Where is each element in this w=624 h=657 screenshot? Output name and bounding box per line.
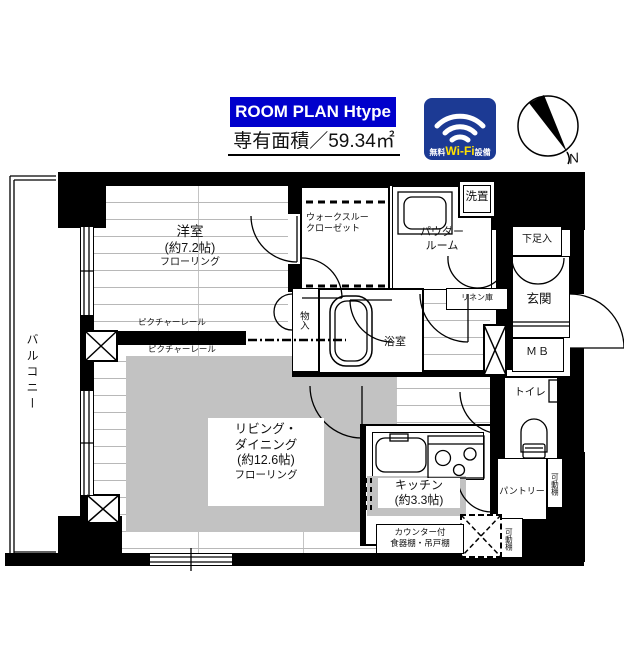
movable-shelf-2-label: 可動棚 <box>504 522 513 556</box>
western-room-size: (約7.2帖) <box>130 241 250 257</box>
kitchen-label-2: (約3.3帖) <box>378 493 460 508</box>
ld-label-4: フローリング <box>208 469 324 482</box>
storage-label: 物入 <box>297 298 309 342</box>
kitchen-label: キッチン (約3.3帖) <box>378 478 460 508</box>
wall-hall-toilet <box>490 372 504 464</box>
powder-label-1: パウダー <box>406 226 478 240</box>
laundry-label: 洗置 <box>458 190 496 204</box>
powder-label-2: ルーム <box>406 240 478 254</box>
wtc-label-1: ウォークスルー <box>306 212 388 223</box>
compass-n-label: N <box>562 148 585 169</box>
western-room-floor-type: フローリング <box>130 257 250 270</box>
refrigerator-space <box>460 514 502 558</box>
wifi-label-pre: 無料 <box>429 148 445 157</box>
picture-rail-label-1: ピクチャーレール <box>138 317 202 328</box>
meter-box-label: ＭＢ <box>512 346 564 360</box>
wtc-label: ウォークスルー クローゼット <box>302 212 388 235</box>
picture-rail-label-2: ピクチャーレール <box>148 344 214 355</box>
ld-label-1: リビング・ <box>208 422 324 438</box>
wifi-label-brand: Wi-Fi <box>445 144 474 158</box>
walkthrough-closet <box>300 186 390 298</box>
window-bottom <box>150 554 232 565</box>
movable-shelf-1-label: 可動棚 <box>550 462 559 506</box>
entrance-label: 玄関 <box>514 292 564 308</box>
ld-label-2: ダイニング <box>208 438 324 454</box>
shaft-box-1 <box>84 330 118 362</box>
wall-left-seg1 <box>80 186 94 228</box>
linen-label: リネン庫 <box>446 293 508 303</box>
wifi-label: 無料Wi-Fi設備 <box>424 142 496 160</box>
pipe-shaft <box>483 324 507 376</box>
wtc-label-2: クローゼット <box>306 223 388 234</box>
pantry-label: パントリー <box>498 486 546 497</box>
wifi-icon <box>424 100 496 144</box>
living-dining-label: リビング・ ダイニング (約12.6帖) フローリング <box>208 418 324 506</box>
kitchen-label-1: キッチン <box>378 478 460 493</box>
doorway-entrance <box>570 294 584 348</box>
floor-area-text: 専有面積／59.34㎡ <box>228 130 400 156</box>
page-title: ROOM PLAN Htype <box>230 97 396 127</box>
wall-top-right-block <box>492 186 585 230</box>
window-west <box>80 226 94 316</box>
shaft-box-2 <box>86 494 120 524</box>
counter-cabinet-label: カウンター付 食器棚・吊戸棚 <box>376 527 464 548</box>
wall-toilet-right <box>558 376 572 462</box>
shoe-box-label: 下足入 <box>512 234 562 247</box>
toilet-label: トイレ <box>506 386 554 399</box>
kitchen-counter <box>372 432 484 480</box>
counter-label-2: 食器棚・吊戸棚 <box>376 538 464 549</box>
western-room-label: 洋室 (約7.2帖) フローリング <box>130 224 250 269</box>
bath-label: 浴室 <box>370 336 420 350</box>
western-room-name: 洋室 <box>130 224 250 241</box>
ld-label-3: (約12.6帖) <box>208 453 324 469</box>
floor-plan-page: ROOM PLAN Htype 専有面積／59.34㎡ 無料Wi-Fi設備 N <box>0 0 624 657</box>
wifi-badge: 無料Wi-Fi設備 <box>424 98 496 160</box>
balcony-label: バルコニー <box>24 308 39 438</box>
counter-label-1: カウンター付 <box>376 527 464 538</box>
window-living <box>80 390 94 496</box>
bathroom <box>318 288 424 374</box>
wifi-label-post: 設備 <box>475 148 491 157</box>
wall-top <box>58 172 585 186</box>
powder-room-label: パウダー ルーム <box>406 226 478 254</box>
